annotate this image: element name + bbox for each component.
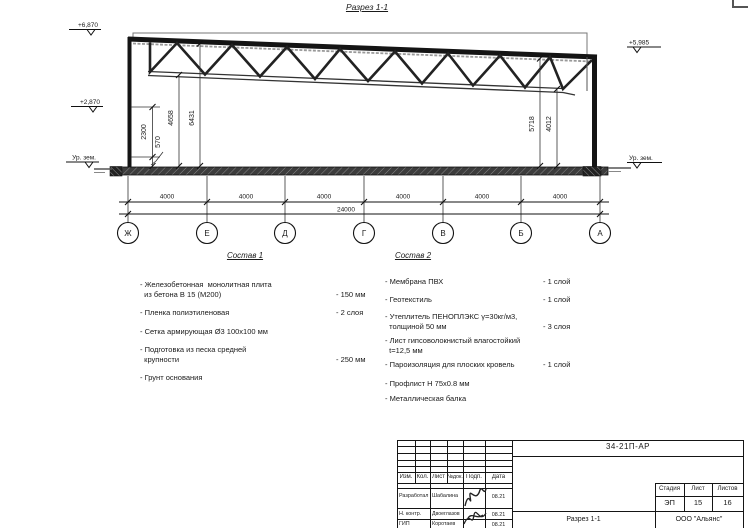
sheet-number: 15 [684, 499, 712, 506]
svg-text:Ур. зем.: Ур. зем. [629, 155, 653, 162]
bay-dim-5: 4000 [553, 194, 568, 201]
list-item: - Пленка полиэтиленовая - 2 слоя [140, 308, 380, 318]
list-item: - Геотекстиль - 1 слой [385, 295, 613, 305]
item-name: - Пароизоляция для плоских кровель [385, 360, 543, 370]
elevation-top-right: +5,985 [627, 40, 661, 53]
item-name: - Профлист Н 75х0.8 мм [385, 379, 543, 389]
tb-role-gip: ГИП [399, 521, 430, 528]
list-item: - Подготовка из песка средней крупности … [140, 345, 380, 364]
axis-label-g: Г [362, 229, 367, 238]
tb-col-kol: Кол. [415, 474, 430, 481]
list-item: - Лист гипсоволокнистый влагостойкий t=1… [385, 336, 613, 355]
item-name: - Мембрана ПВХ [385, 277, 543, 287]
axis-label-b: Б [518, 229, 523, 238]
bay-dim-3: 4000 [396, 194, 411, 201]
stage-col-listov: Листов [712, 485, 743, 492]
tb-line [430, 440, 431, 528]
elevation-top-left: +6,870 [69, 22, 101, 35]
item-value: - 1 слой [543, 295, 570, 305]
tb-col-data: Дата [485, 474, 512, 481]
axis-bubbles: Ж Е Д Г В Б А [118, 223, 611, 244]
tb-line [655, 483, 744, 484]
drawing-sheet: Разрез 1-1 [0, 0, 748, 528]
bay-dim-2: 4000 [317, 194, 332, 201]
tb-line [512, 456, 744, 457]
axis-label-e: Е [204, 229, 209, 238]
section-drawing: +6,870 +2,870 Ур. зем. +5,985 Ур. зем. [0, 0, 748, 262]
tb-date-3: 08.21 [486, 522, 511, 528]
item-name: - Геотекстиль [385, 295, 543, 305]
dim-570: 570 [155, 136, 162, 148]
item-value: - 2 слоя [336, 308, 363, 318]
tb-col-ndok: №док. [447, 474, 463, 481]
item-value: - 150 мм [336, 290, 366, 300]
item-value: - 3 слоя [543, 322, 570, 332]
truss-bottom-chord-bottom [148, 76, 563, 93]
axis-label-zh: Ж [124, 229, 132, 238]
bay-dim-4: 4000 [475, 194, 490, 201]
sheets-total: 16 [712, 499, 743, 506]
tb-line [512, 440, 513, 528]
list-item: - Сетка армирующая Ø3 100х100 мм [140, 327, 380, 337]
item-value: - 250 мм [336, 355, 366, 365]
tb-line [655, 496, 744, 497]
list-item: - Профлист Н 75х0.8 мм [385, 379, 613, 389]
dim-6431: 6431 [189, 110, 196, 126]
truss-bottom-chord-top [148, 72, 563, 89]
svg-text:+5,985: +5,985 [629, 40, 649, 47]
svg-text:+2,870: +2,870 [80, 99, 100, 106]
tb-date-2: 08.21 [486, 512, 511, 519]
axis-extension-lines [128, 176, 600, 222]
list-item: - Мембрана ПВХ - 1 слой [385, 277, 613, 287]
list-item: - Железобетонная монолитная плита из бет… [140, 280, 380, 299]
item-value: - 1 слой [543, 277, 570, 287]
elevation-ground-left: Ур. зем. [66, 155, 99, 168]
item-name: - Утеплитель ПЕНОПЛЭКС γ=30кг/м3, толщин… [385, 312, 543, 331]
item-name: - Сетка армирующая Ø3 100х100 мм [140, 327, 336, 337]
tb-role-razrabotal: Разработал [399, 493, 430, 500]
list-item: - Металлическая балка [385, 394, 613, 404]
sostav1-list: - Железобетонная монолитная плита из бет… [140, 280, 380, 392]
sostav2-heading: Состав 2 [383, 251, 443, 260]
svg-text:+6,870: +6,870 [78, 22, 98, 29]
stage-val: ЭП [655, 499, 684, 506]
tb-col-podp: Подп. [463, 474, 485, 481]
tb-role-nkontr: Н. контр. [399, 511, 430, 518]
list-item: - Пароизоляция для плоских кровель - 1 с… [385, 360, 613, 370]
tb-line [397, 508, 512, 509]
title-block: 34-21П-АР Изм. Кол. Лист №док. Подп. Дат… [397, 440, 744, 528]
bay-dim-1: 4000 [239, 194, 254, 201]
dim-4012: 4012 [546, 116, 553, 132]
sostav1-heading: Состав 1 [215, 251, 275, 260]
signature-scribbles [459, 484, 489, 528]
total-dim-label: 24000 [337, 207, 355, 214]
tb-line [397, 483, 512, 484]
axis-label-a: А [597, 229, 603, 238]
axis-label-v: В [440, 229, 445, 238]
svg-text:Ур. зем.: Ур. зем. [72, 155, 96, 162]
item-name: - Грунт основания [140, 373, 336, 383]
list-item: - Утеплитель ПЕНОПЛЭКС γ=30кг/м3, толщин… [385, 312, 613, 331]
elevation-mid-left: +2,870 [71, 99, 103, 112]
tb-line [397, 440, 398, 528]
tb-date-1: 08.21 [486, 494, 511, 501]
foundation-right [583, 167, 601, 177]
axis-label-d: Д [282, 229, 288, 238]
tb-line [397, 488, 512, 489]
tb-company: ООО "Альянс" [655, 516, 743, 523]
bay-dim-0: 4000 [160, 194, 175, 201]
tb-line [397, 519, 512, 520]
list-item: - Грунт основания [140, 373, 380, 383]
truss-bottom-chord-end [563, 93, 575, 96]
item-value: - 1 слой [543, 360, 570, 370]
stage-col-stadia: Стадия [655, 485, 684, 492]
dim-4658: 4658 [168, 110, 175, 126]
dim-5718: 5718 [529, 116, 536, 132]
tb-drawing-title: Разрез 1-1 [512, 516, 655, 523]
item-name: - Железобетонная монолитная плита из бет… [140, 280, 336, 299]
tb-col-list: Лист [430, 474, 447, 481]
tb-line [743, 440, 744, 528]
item-name: - Пленка полиэтиленовая [140, 308, 336, 318]
item-name: - Лист гипсоволокнистый влагостойкий t=1… [385, 336, 543, 355]
doc-number: 34-21П-АР [512, 443, 744, 450]
roof-slab [128, 39, 597, 57]
dim-2300: 2300 [141, 124, 148, 140]
item-name: - Металлическая балка [385, 394, 543, 404]
tb-col-izm: Изм. [397, 474, 415, 481]
elevation-ground-right: Ур. зем. [627, 155, 662, 168]
stage-col-list: Лист [684, 485, 712, 492]
dimension-ticks [150, 41, 561, 170]
item-name: - Подготовка из песка средней крупности [140, 345, 336, 364]
tb-line [397, 440, 744, 441]
floor-slab [112, 167, 608, 175]
tb-line [512, 511, 744, 512]
sostav2-list: - Мембрана ПВХ - 1 слой - Геотекстиль - … [385, 277, 613, 413]
foundation-left [110, 167, 122, 177]
